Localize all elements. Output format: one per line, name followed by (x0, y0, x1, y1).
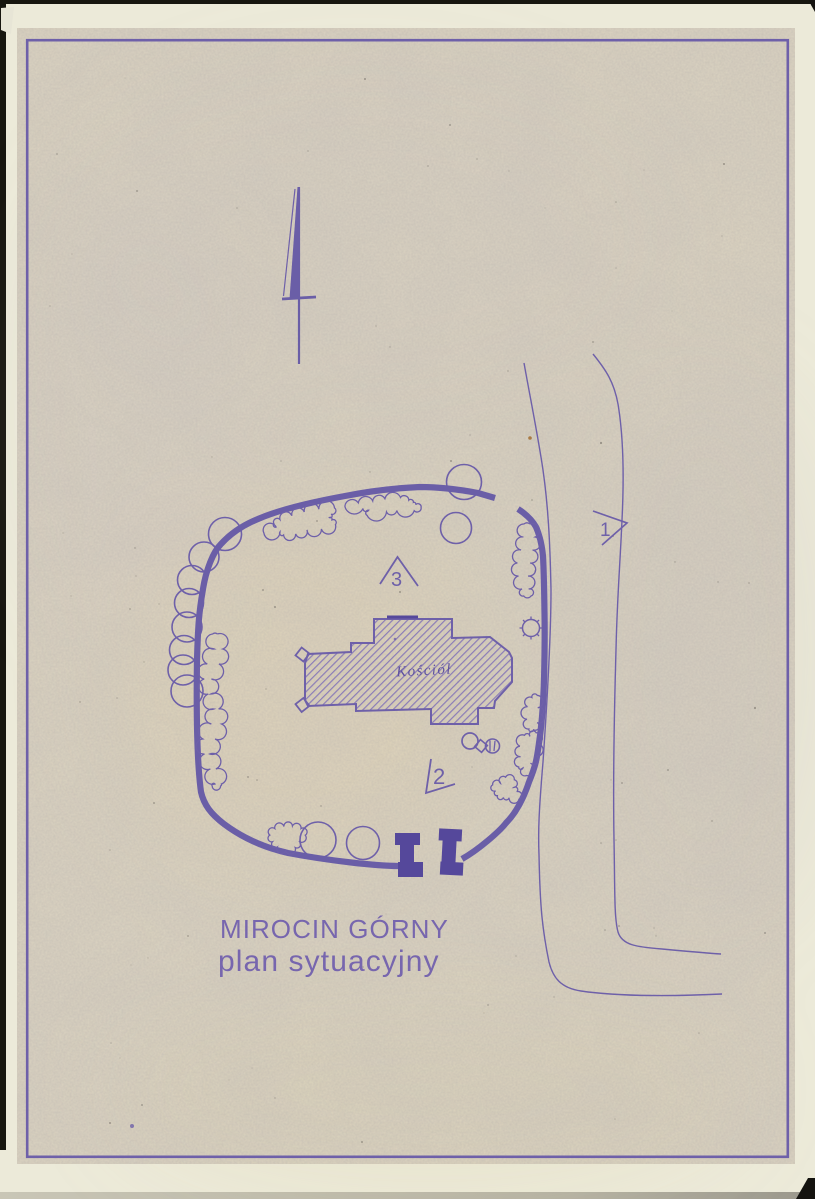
svg-text:3: 3 (391, 569, 402, 591)
svg-text:Kościół: Kościół (395, 662, 452, 681)
svg-text:1: 1 (600, 520, 611, 541)
svg-text:MIROCIN GÓRNY: MIROCIN GÓRNY (220, 914, 449, 944)
svg-text:2: 2 (433, 764, 445, 789)
svg-text:plan sytuacyjny: plan sytuacyjny (218, 945, 440, 978)
